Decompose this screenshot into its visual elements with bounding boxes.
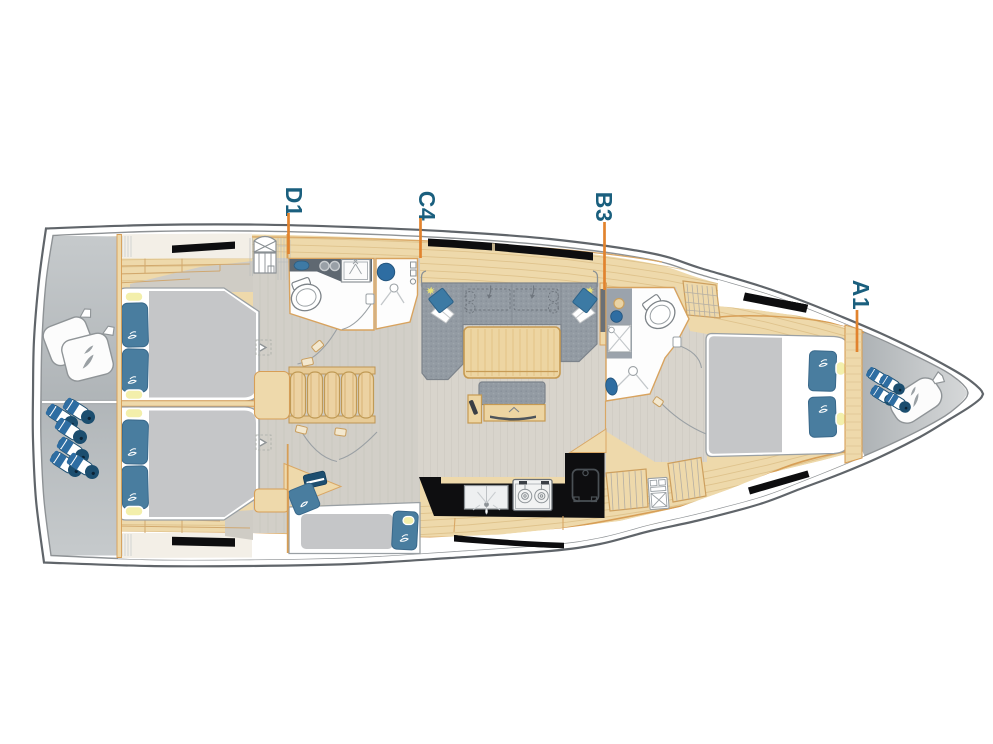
svg-text:C4: C4 xyxy=(414,191,440,221)
svg-text:B3: B3 xyxy=(591,192,617,222)
svg-text:A1: A1 xyxy=(848,280,874,310)
svg-text:D1: D1 xyxy=(281,187,307,217)
